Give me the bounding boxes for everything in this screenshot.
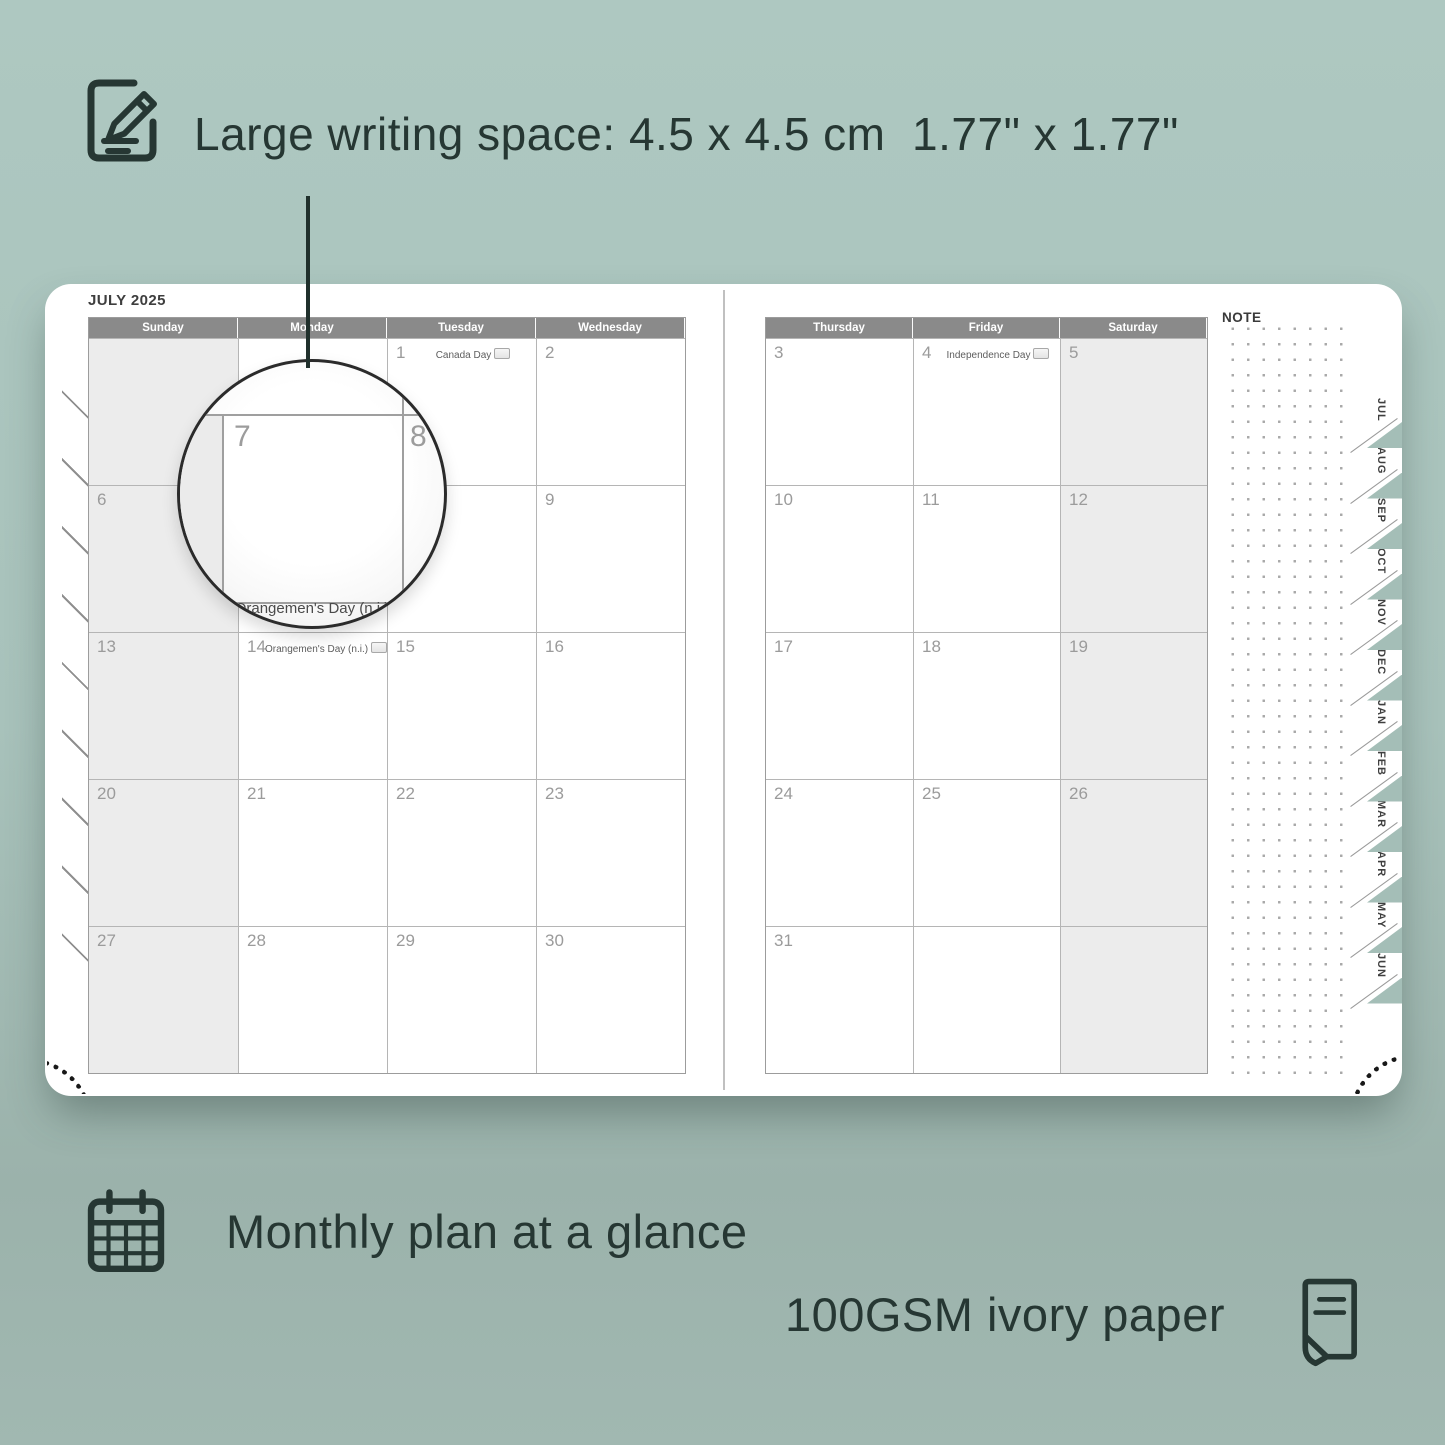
- calendar-grid-right: ThursdayFridaySaturday34Independence Day…: [765, 317, 1208, 1074]
- flag-badge-icon: [371, 642, 387, 653]
- page-gutter: [723, 290, 725, 1090]
- day-number: 6: [97, 490, 106, 510]
- calendar-cell: 2: [536, 338, 685, 485]
- day-number: 20: [97, 784, 116, 804]
- feature-monthly-label: Monthly plan at a glance: [226, 1204, 748, 1259]
- calendar-cell: 12: [1060, 485, 1207, 632]
- calendar-cell: 23: [536, 779, 685, 926]
- note-label: NOTE: [1222, 310, 1268, 327]
- day-number: 12: [1069, 490, 1088, 510]
- day-number: 24: [774, 784, 793, 804]
- calendar-cell: 3: [766, 338, 913, 485]
- magnified-day-number: 8: [410, 420, 427, 454]
- day-number: 14: [247, 637, 266, 657]
- calendar-cell: 19: [1060, 632, 1207, 779]
- calendar-cell: 28: [238, 926, 387, 1073]
- day-number: 18: [922, 637, 941, 657]
- callout-connector-line: [306, 196, 310, 368]
- day-number: 22: [396, 784, 415, 804]
- calendar-cell: 31: [766, 926, 913, 1073]
- feature-writing-space-label: Large writing space: 4.5 x 4.5 cm 1.77" …: [194, 100, 1179, 168]
- calendar-cell: [1060, 926, 1207, 1073]
- planner-spread: JULY 2025 SundayMondayTuesdayWednesday1C…: [45, 284, 1402, 1096]
- day-number: 13: [97, 637, 116, 657]
- calendar-cell: 13: [89, 632, 238, 779]
- day-header: Wednesday: [536, 318, 685, 338]
- note-dot-grid: [1222, 315, 1348, 1075]
- paper-icon: [1278, 1270, 1372, 1372]
- calendar-cell: 24: [766, 779, 913, 926]
- magnifier-circle: 7 8 Orangemen's Day (n.i.): [177, 359, 447, 629]
- day-number: 27: [97, 931, 116, 951]
- day-header: Saturday: [1060, 318, 1207, 338]
- magnified-day-number: 7: [234, 420, 251, 454]
- calendar-cell: [913, 926, 1060, 1073]
- calendar-cell: 29: [387, 926, 536, 1073]
- holiday-label: Orangemen's Day (n.i.): [265, 642, 383, 655]
- day-header: Friday: [913, 318, 1060, 338]
- holiday-label: Canada Day: [414, 348, 532, 361]
- day-number: 11: [922, 490, 940, 510]
- calendar-cell: 5: [1060, 338, 1207, 485]
- magnified-grid-line: [180, 414, 444, 416]
- day-number: 4: [922, 343, 931, 363]
- day-number: 29: [396, 931, 415, 951]
- day-number: 10: [774, 490, 793, 510]
- magnified-shaded-cell: [180, 414, 222, 602]
- calendar-cell: 11: [913, 485, 1060, 632]
- calendar-cell: 21: [238, 779, 387, 926]
- calendar-cell: 10: [766, 485, 913, 632]
- day-number: 9: [545, 490, 554, 510]
- day-header: Sunday: [89, 318, 238, 338]
- corner-dotted-arc-left: [47, 1036, 159, 1094]
- day-number: 1: [396, 343, 405, 363]
- day-header: Thursday: [766, 318, 913, 338]
- calendar-cell: 15: [387, 632, 536, 779]
- magnified-grid-line: [222, 414, 224, 602]
- feature-paper-label: 100GSM ivory paper: [785, 1287, 1225, 1342]
- calendar-cell: 9: [536, 485, 685, 632]
- day-number: 28: [247, 931, 266, 951]
- calendar-cell: 20: [89, 779, 238, 926]
- calendar-cell: 25: [913, 779, 1060, 926]
- planner-product-showcase: { "colors": { "background": "#a8c2bb", "…: [0, 0, 1445, 1445]
- day-number: 30: [545, 931, 564, 951]
- corner-dotted-arc-right: [1285, 1036, 1400, 1094]
- day-number: 25: [922, 784, 941, 804]
- holiday-label: Independence Day: [940, 348, 1056, 361]
- day-number: 26: [1069, 784, 1088, 804]
- calendar-cell: 4Independence Day: [913, 338, 1060, 485]
- day-number: 16: [545, 637, 564, 657]
- calendar-cell: 18: [913, 632, 1060, 779]
- day-header: Tuesday: [387, 318, 536, 338]
- day-number: 15: [396, 637, 415, 657]
- page-edge-hatching: [62, 356, 89, 1001]
- day-number: 31: [774, 931, 793, 951]
- magnified-grid-line: [402, 362, 404, 626]
- magnified-holiday-label: Orangemen's Day (n.i.): [180, 600, 444, 617]
- day-number: 5: [1069, 343, 1078, 363]
- calendar-cell: 14Orangemen's Day (n.i.): [238, 632, 387, 779]
- day-header: Monday: [238, 318, 387, 338]
- flag-badge-icon: [494, 348, 510, 359]
- day-number: 21: [247, 784, 266, 804]
- month-tab-jul: JUL: [1363, 390, 1399, 430]
- day-number: 3: [774, 343, 783, 363]
- flag-badge-icon: [1033, 348, 1049, 359]
- calendar-cell: 22: [387, 779, 536, 926]
- day-number: 23: [545, 784, 564, 804]
- day-number: 17: [774, 637, 793, 657]
- day-number: 19: [1069, 637, 1088, 657]
- day-number: 2: [545, 343, 554, 363]
- calendar-icon: [80, 1186, 172, 1278]
- pencil-note-icon: [78, 68, 178, 172]
- calendar-cell: 26: [1060, 779, 1207, 926]
- calendar-cell: 30: [536, 926, 685, 1073]
- month-title: JULY 2025: [88, 292, 166, 309]
- calendar-cell: 17: [766, 632, 913, 779]
- calendar-cell: 16: [536, 632, 685, 779]
